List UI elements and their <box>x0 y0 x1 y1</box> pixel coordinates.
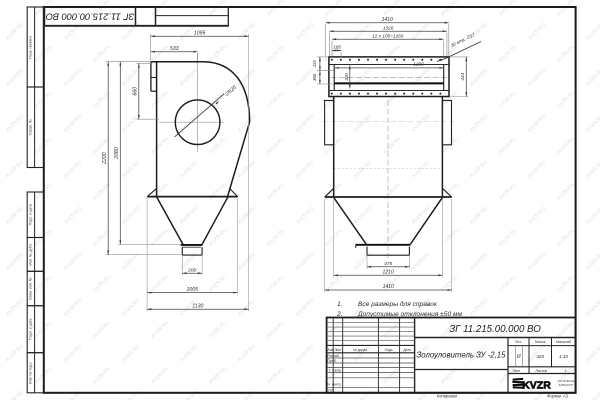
svg-text:420: 420 <box>536 354 544 359</box>
svg-text:Инв. № подл.: Инв. № подл. <box>29 362 33 384</box>
svg-text:Утб.: Утб. <box>328 388 335 392</box>
svg-text:2200: 2200 <box>102 152 108 165</box>
svg-text:Лит.: Лит. <box>515 340 521 344</box>
svg-text:1410: 1410 <box>382 17 393 23</box>
svg-text:1210: 1210 <box>382 270 393 276</box>
svg-text:Проб.: Проб. <box>328 359 337 363</box>
svg-text:Подп. и дата: Подп. и дата <box>29 204 33 225</box>
svg-text:105: 105 <box>333 45 341 50</box>
svg-text:Масса: Масса <box>535 340 545 344</box>
svg-text:Перв. примен.: Перв. примен. <box>29 35 33 59</box>
svg-text:Н. контр.: Н. контр. <box>328 382 342 386</box>
svg-text:1200: 1200 <box>413 62 424 67</box>
svg-text:ЗГ 11.215.00.000 ВО: ЗГ 11.215.00.000 ВО <box>449 324 541 335</box>
svg-text:Листов: Листов <box>535 369 547 373</box>
svg-text:12 х 105=1260: 12 х 105=1260 <box>372 33 404 38</box>
svg-text:Т. контр.: Т. контр. <box>329 368 342 372</box>
svg-text:1130: 1130 <box>192 303 203 309</box>
svg-text:Дата: Дата <box>403 348 410 352</box>
svg-text:200: 200 <box>187 267 196 273</box>
svg-text:1005: 1005 <box>186 287 198 293</box>
svg-text:Подп.: Подп. <box>385 348 394 352</box>
svg-text:115: 115 <box>312 60 317 68</box>
svg-text:2080: 2080 <box>114 147 120 160</box>
svg-text:Подп. и дата: Подп. и дата <box>29 319 33 340</box>
svg-text:1326: 1326 <box>383 25 394 30</box>
svg-text:1.: 1. <box>337 301 343 308</box>
svg-text:Масштаб: Масштаб <box>556 340 571 344</box>
svg-text:KVZR: KVZR <box>522 379 551 391</box>
svg-text:444: 444 <box>460 72 465 80</box>
svg-text:Инв. № дубл.: Инв. № дубл. <box>29 243 33 265</box>
svg-text:1:10: 1:10 <box>559 354 568 359</box>
svg-text:1410: 1410 <box>383 284 394 290</box>
svg-text:КОТЕЛЬНЫЙ: КОТЕЛЬНЫЙ <box>559 379 576 383</box>
svg-text:Формат А3: Формат А3 <box>547 394 568 399</box>
svg-text:Справ. №: Справ. № <box>29 119 33 135</box>
svg-text:475: 475 <box>384 261 392 267</box>
svg-text:Золоуловитель ЗУ -2,15: Золоуловитель ЗУ -2,15 <box>417 350 507 359</box>
svg-text:660: 660 <box>133 87 139 96</box>
svg-text:533: 533 <box>170 46 179 52</box>
svg-text:ЗАВОД РЗГ: ЗАВОД РЗГ <box>559 383 574 387</box>
svg-text:№ докум.: № докум. <box>353 348 368 352</box>
svg-text:320: 320 <box>344 73 349 81</box>
svg-text:360: 360 <box>312 73 317 81</box>
svg-text:Изм: Изм <box>327 348 334 352</box>
svg-text:Разраб.: Разраб. <box>328 354 340 358</box>
svg-text:Взам. инв. №: Взам. инв. № <box>29 277 33 299</box>
svg-text:1095: 1095 <box>194 30 206 36</box>
svg-text:Лист: Лист <box>513 369 521 373</box>
svg-text:Все размеры для справок: Все размеры для справок <box>358 300 438 308</box>
svg-text:Копировал: Копировал <box>437 394 458 399</box>
svg-text:И: И <box>517 354 521 360</box>
svg-text:ЗГ 11.215.00.000 ВО: ЗГ 11.215.00.000 ВО <box>45 12 134 23</box>
svg-text:Лист: Лист <box>334 348 342 352</box>
